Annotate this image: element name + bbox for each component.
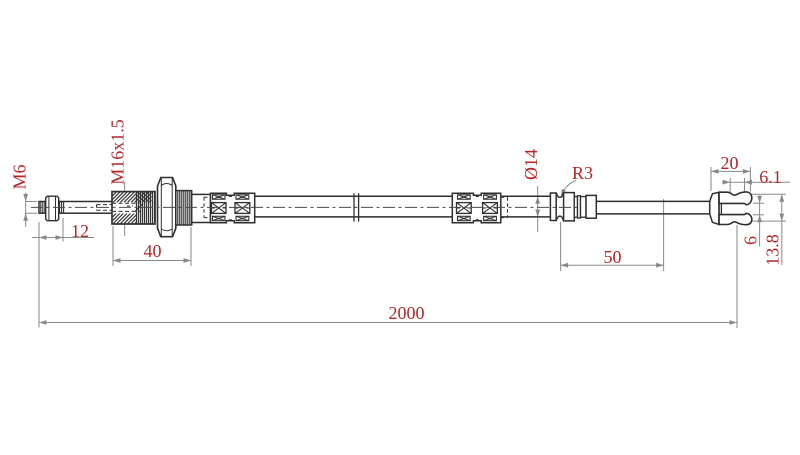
svg-text:Ø14: Ø14 bbox=[521, 149, 541, 180]
svg-text:M16x1.5: M16x1.5 bbox=[108, 119, 128, 185]
svg-text:2000: 2000 bbox=[389, 303, 425, 323]
svg-text:50: 50 bbox=[604, 247, 622, 267]
svg-text:13.8: 13.8 bbox=[763, 234, 783, 266]
svg-text:R3: R3 bbox=[572, 163, 593, 183]
svg-text:6.1: 6.1 bbox=[759, 167, 782, 187]
svg-text:20: 20 bbox=[721, 153, 739, 173]
svg-text:12: 12 bbox=[71, 221, 89, 241]
svg-text:40: 40 bbox=[144, 241, 162, 261]
svg-text:6: 6 bbox=[741, 236, 761, 245]
svg-text:M6: M6 bbox=[10, 164, 30, 189]
